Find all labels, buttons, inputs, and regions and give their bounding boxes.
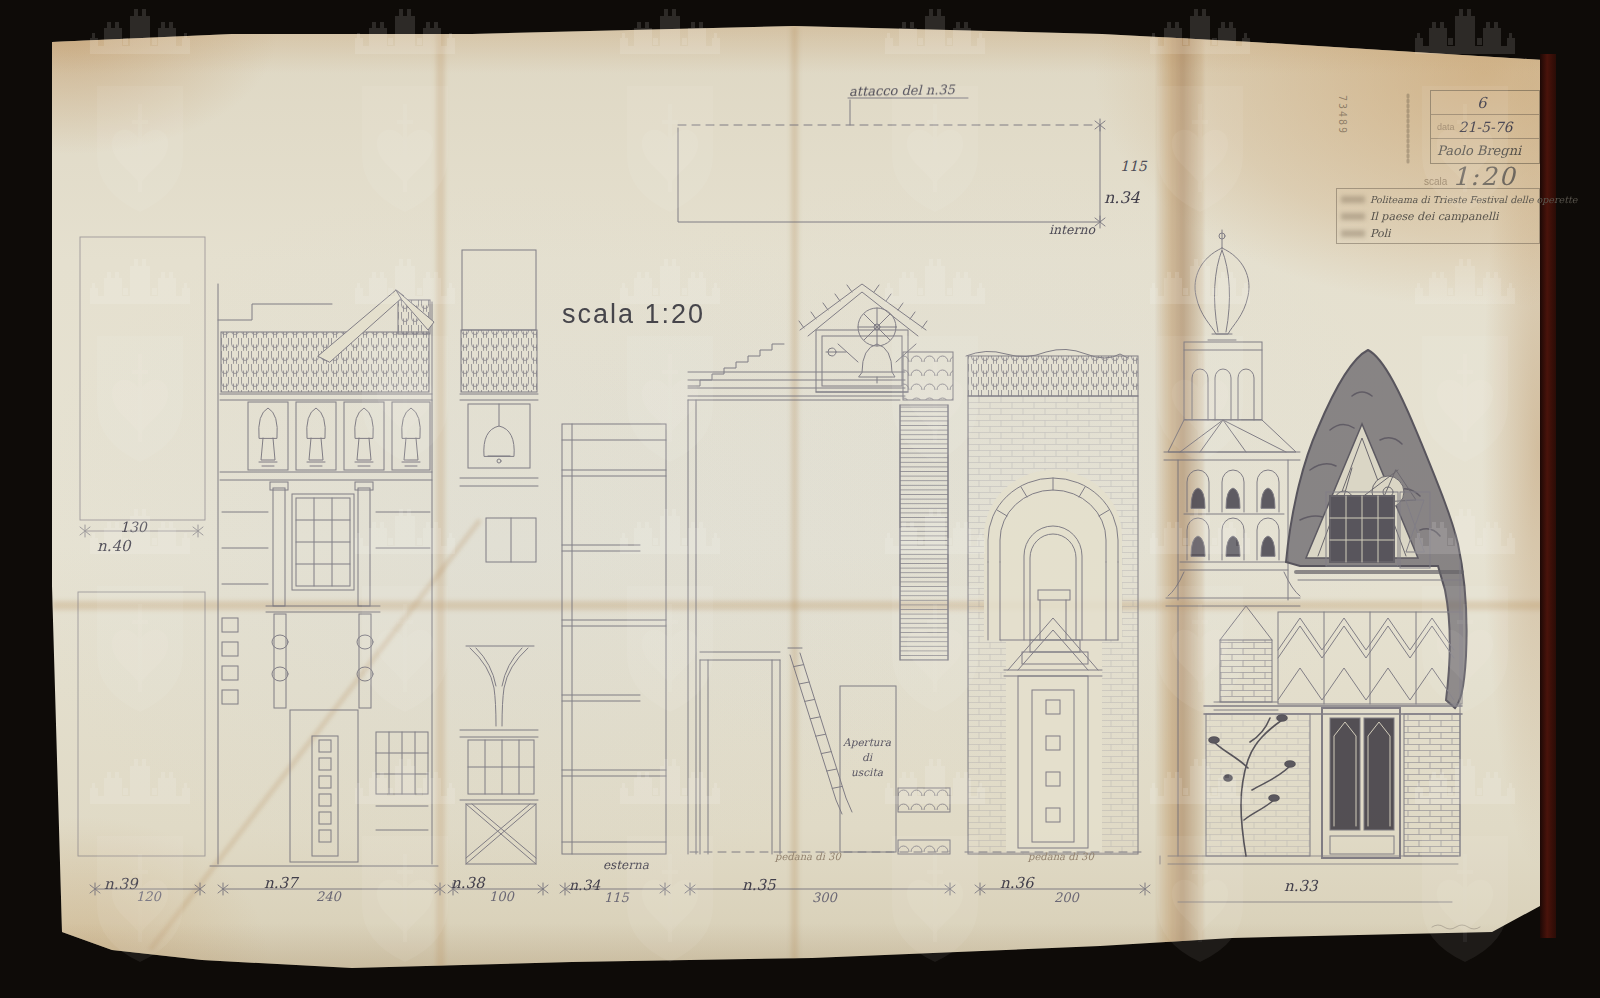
scale-entry: scala 1:20 xyxy=(1424,162,1517,191)
attacco-label: attacco del n.35 xyxy=(849,82,955,99)
exit-opening-note: Apertura di uscita xyxy=(836,735,898,780)
detail-piece-label: n.34 xyxy=(1104,188,1140,207)
n38-label: n.38 xyxy=(451,874,485,892)
scale-label: scala xyxy=(1424,176,1447,187)
n40-label: n.40 xyxy=(97,537,131,555)
designer-signature: Paolo Bregni xyxy=(1437,143,1521,158)
archive-stamp-number: 73489 xyxy=(1337,95,1348,135)
venue-line: Politeama di Trieste Festival delle oper… xyxy=(1370,194,1577,205)
n36-label: n.36 xyxy=(1000,874,1034,892)
panel-n34 xyxy=(562,424,666,854)
n37-label: n.37 xyxy=(264,874,298,892)
date-value: 21-5-76 xyxy=(1459,119,1513,135)
scanned-drawing-sheet: scala 1:20 attacco del n.35 115 n.34 int… xyxy=(0,0,1600,998)
pedana-note-n35: pedana di 30 xyxy=(775,851,841,862)
scale-value: 1:20 xyxy=(1452,162,1516,191)
n33-label: n.33 xyxy=(1284,877,1318,895)
n38-dim: 100 xyxy=(489,889,514,904)
n36-dim: 200 xyxy=(1054,890,1079,905)
panel-n37 xyxy=(210,284,438,866)
n37-dim: 240 xyxy=(316,889,341,904)
n34-label: n.34 xyxy=(569,877,600,893)
pedana-note-n36: pedana di 30 xyxy=(1028,851,1094,862)
n34-dim: 115 xyxy=(604,890,629,905)
panel-n39 xyxy=(78,592,205,856)
n35-label: n.35 xyxy=(742,876,776,894)
sheet-number: 6 xyxy=(1477,94,1487,112)
n40-dim: 130 xyxy=(120,519,147,535)
panel-n40 xyxy=(80,237,205,537)
scale-note: scala 1:20 xyxy=(562,299,705,330)
printed-label-smudge xyxy=(1341,196,1365,203)
interno-note: interno xyxy=(1049,222,1095,237)
operetta-title-line: Il paese dei campanelli xyxy=(1370,210,1499,223)
printed-label-smudge xyxy=(1341,213,1365,220)
panel-n38 xyxy=(460,250,538,864)
pencil-drawing xyxy=(0,0,1600,998)
detail-height-dim: 115 xyxy=(1120,158,1147,174)
printed-label-smudge xyxy=(1341,230,1365,237)
panel-n36 xyxy=(965,349,1142,854)
date-label: data xyxy=(1437,122,1455,132)
title-block-small: 6 data 21-5-76 Paolo Bregni xyxy=(1430,90,1540,164)
detail-attacco-n35 xyxy=(678,98,1105,228)
panel-n35 xyxy=(688,284,953,854)
n39-label: n.39 xyxy=(104,875,138,893)
panel-n33 xyxy=(1160,230,1467,902)
author-line: Poli xyxy=(1370,227,1391,240)
title-block-production: Politeama di Trieste Festival delle oper… xyxy=(1336,188,1540,244)
n39-dim: 120 xyxy=(136,889,161,904)
esterna-note: esterna xyxy=(603,858,649,872)
n35-dim: 300 xyxy=(812,890,837,905)
